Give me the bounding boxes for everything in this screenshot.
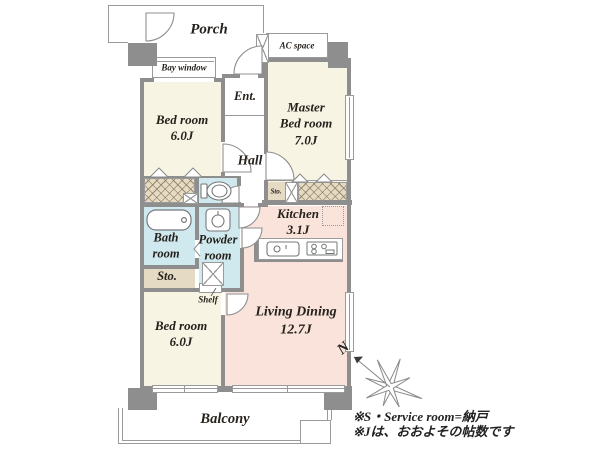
powder-door-arc [242,228,262,248]
bathtub-icon [146,209,192,231]
hall-label: Hall [238,153,263,170]
footnote-line-1: ※S・Service room=納戸 [353,409,513,424]
closet-fold-door-mark [150,168,168,177]
balcony-label: Balcony [200,410,249,428]
ac-space-label: AC space [280,40,315,51]
powder-name-1: Powder [199,232,238,248]
footnote-line-2: ※Jは、おおよその帖数です [353,424,513,439]
living-dining-name: Living Dining [255,304,336,322]
bedroom-top-name: Bed room [156,112,208,128]
bedroom-bottom-name: Bed room [155,318,207,334]
closet-fold-door-mark [316,174,332,182]
stove-icon [306,241,338,256]
bedroom-bottom-size: 6.0J [155,334,207,350]
storage-lower-label: Sto. [157,269,177,285]
compass-arrowhead [354,357,363,364]
compass-north-label: N [334,338,354,359]
powder-label: Powder room [199,232,238,263]
bay-window-label: Bay window [161,62,206,73]
master-name-2: Bed room [280,116,332,132]
shelf-label: Shelf [198,294,218,305]
living-dining-label: Living Dining 12.7J [255,304,336,339]
entrance-label: Ent. [234,89,256,105]
hall-living-door-arc [239,207,260,228]
powder-name-2: room [199,248,238,264]
bedroom-top-label: Bed room 6.0J [156,112,208,145]
bedroom-bottom-door-arc [227,294,248,315]
master-bedroom-label: Master Bed room 7.0J [280,100,332,149]
toilet-icon [200,180,234,202]
living-dining-size: 12.7J [255,321,336,339]
porch-label: Porch [190,21,228,40]
storage-mid-label: Sto. [270,188,281,197]
master-name-1: Master [280,100,332,116]
bath-name-1: Bath [152,230,179,246]
master-door-arc [266,152,294,180]
bath-name-2: room [152,246,179,262]
bedroom-bottom-label: Bed room 6.0J [155,318,207,351]
closet-fold-door-mark [184,168,202,177]
kitchen-sink-icon [266,241,300,257]
entrance-door-arc [234,46,262,74]
footnotes: ※S・Service room=納戸 ※Jは、おおよその帖数です [353,409,513,439]
kitchen-size: 3.1J [277,222,319,238]
kitchen-label: Kitchen 3.1J [277,206,319,239]
bedroom-top-size: 6.0J [156,128,208,144]
kitchen-name: Kitchen [277,206,319,222]
porch-door-arc [146,13,174,41]
floor-plan: N Porch Bay window AC space Bed room 6.0… [0,0,600,450]
bath-label: Bath room [152,230,179,261]
master-size: 7.0J [280,132,332,148]
powder-sink-icon [205,208,231,232]
